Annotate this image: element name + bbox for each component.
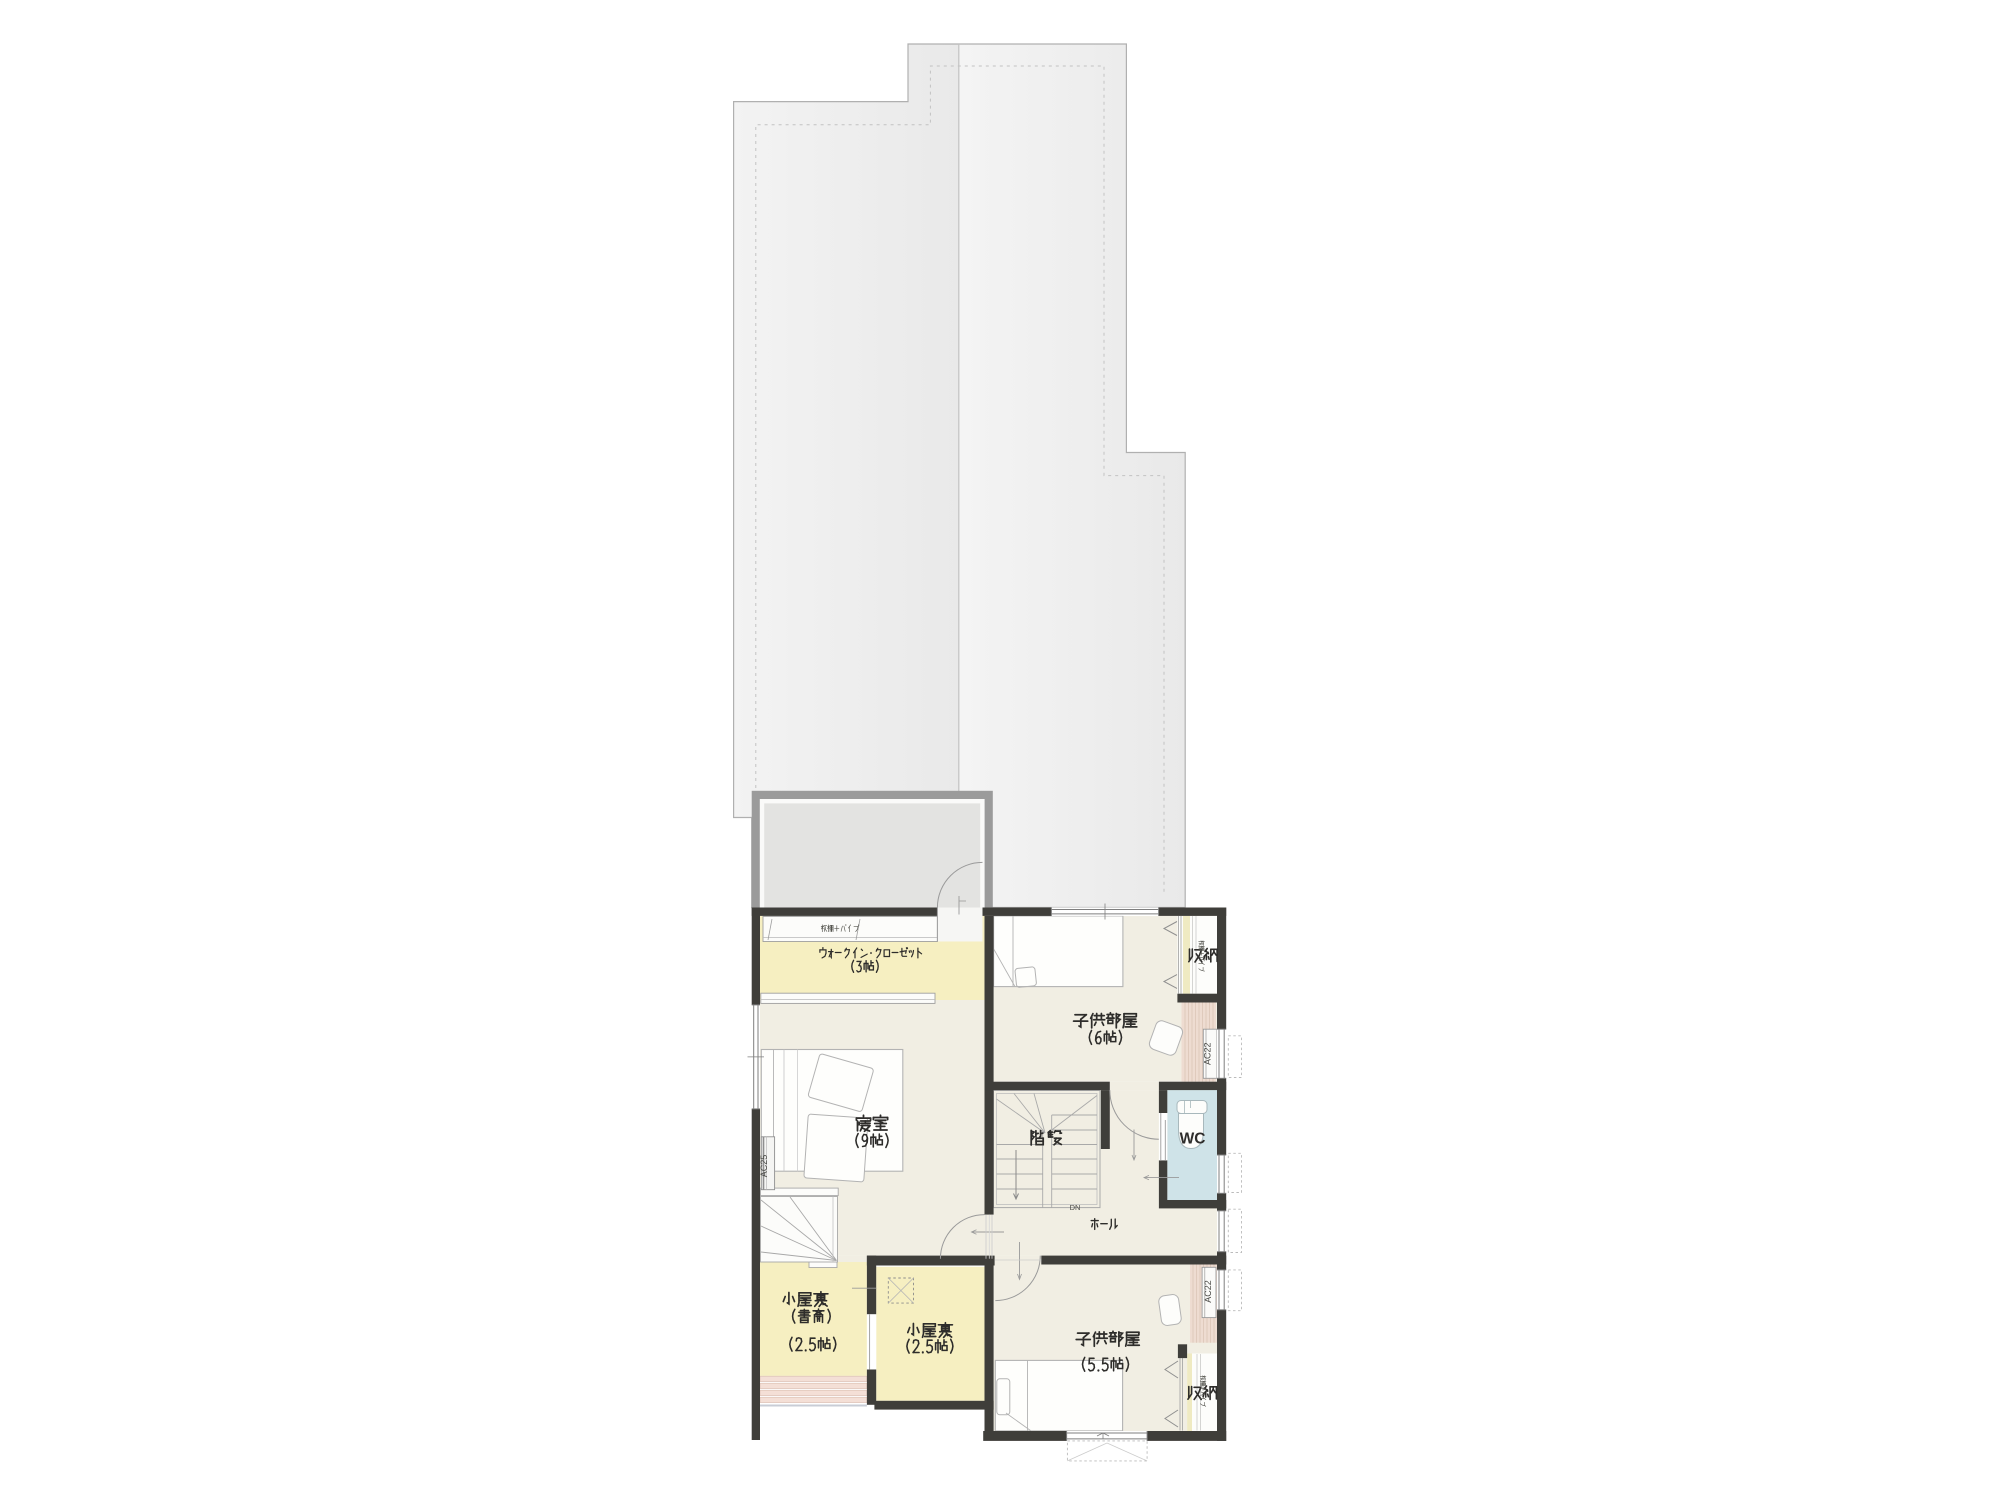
svg-text:DN: DN: [1070, 1203, 1081, 1212]
svg-text:AC22: AC22: [1203, 1280, 1213, 1303]
svg-text:AC22: AC22: [1202, 1042, 1212, 1065]
svg-text:AC25: AC25: [759, 1155, 769, 1178]
svg-text:WC: WC: [1180, 1131, 1206, 1148]
